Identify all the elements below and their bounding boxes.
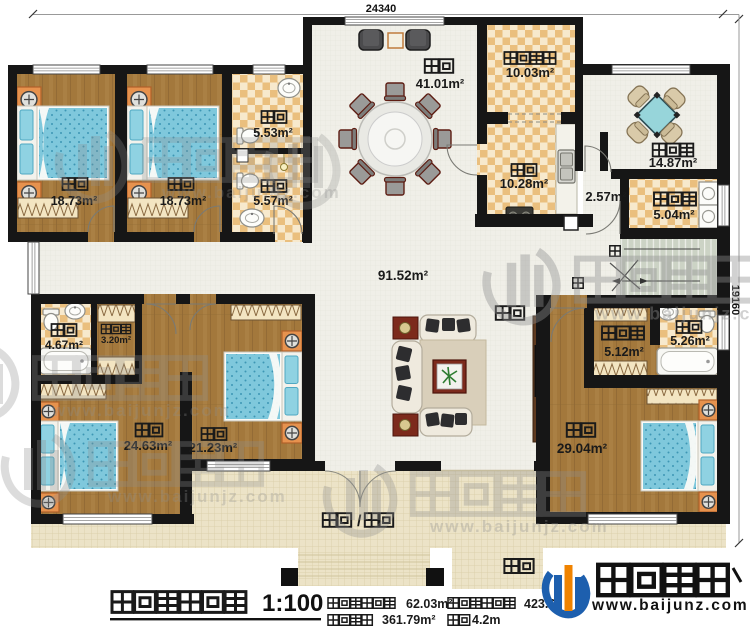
svg-text:2.57m²: 2.57m² <box>585 189 627 204</box>
svg-text:62.03m²: 62.03m² <box>406 597 453 611</box>
svg-text:5.12m²: 5.12m² <box>604 345 644 359</box>
svg-text:361.79m²: 361.79m² <box>382 613 436 627</box>
svg-text:41.01m²: 41.01m² <box>416 76 465 91</box>
svg-text:4.67m²: 4.67m² <box>45 338 83 352</box>
svg-text:10.03m²: 10.03m² <box>506 65 555 80</box>
svg-text:3.20m²: 3.20m² <box>101 335 131 346</box>
svg-text:www.baijunjz.com: www.baijunjz.com <box>107 487 287 506</box>
svg-text:5.26m²: 5.26m² <box>670 334 710 348</box>
svg-text:1:100: 1:100 <box>262 590 323 617</box>
svg-text:5.04m²: 5.04m² <box>653 207 695 222</box>
svg-text:www.baijunz.com: www.baijunz.com <box>591 597 748 614</box>
svg-text:10.28m²: 10.28m² <box>500 176 549 191</box>
svg-text:14.87m²: 14.87m² <box>649 155 698 170</box>
svg-text:www.baijunjz.com: www.baijunjz.com <box>594 304 750 324</box>
svg-text:www.baijunjz.com: www.baijunjz.com <box>161 183 341 202</box>
svg-text:4.2m: 4.2m <box>472 613 501 627</box>
svg-text:91.52m²: 91.52m² <box>378 268 429 283</box>
svg-text:24340: 24340 <box>366 3 397 15</box>
svg-text:www.baijunjz.com: www.baijunjz.com <box>51 401 231 420</box>
svg-text:www.baijunjz.com: www.baijunjz.com <box>429 517 609 536</box>
svg-text:29.04m²: 29.04m² <box>557 441 608 456</box>
